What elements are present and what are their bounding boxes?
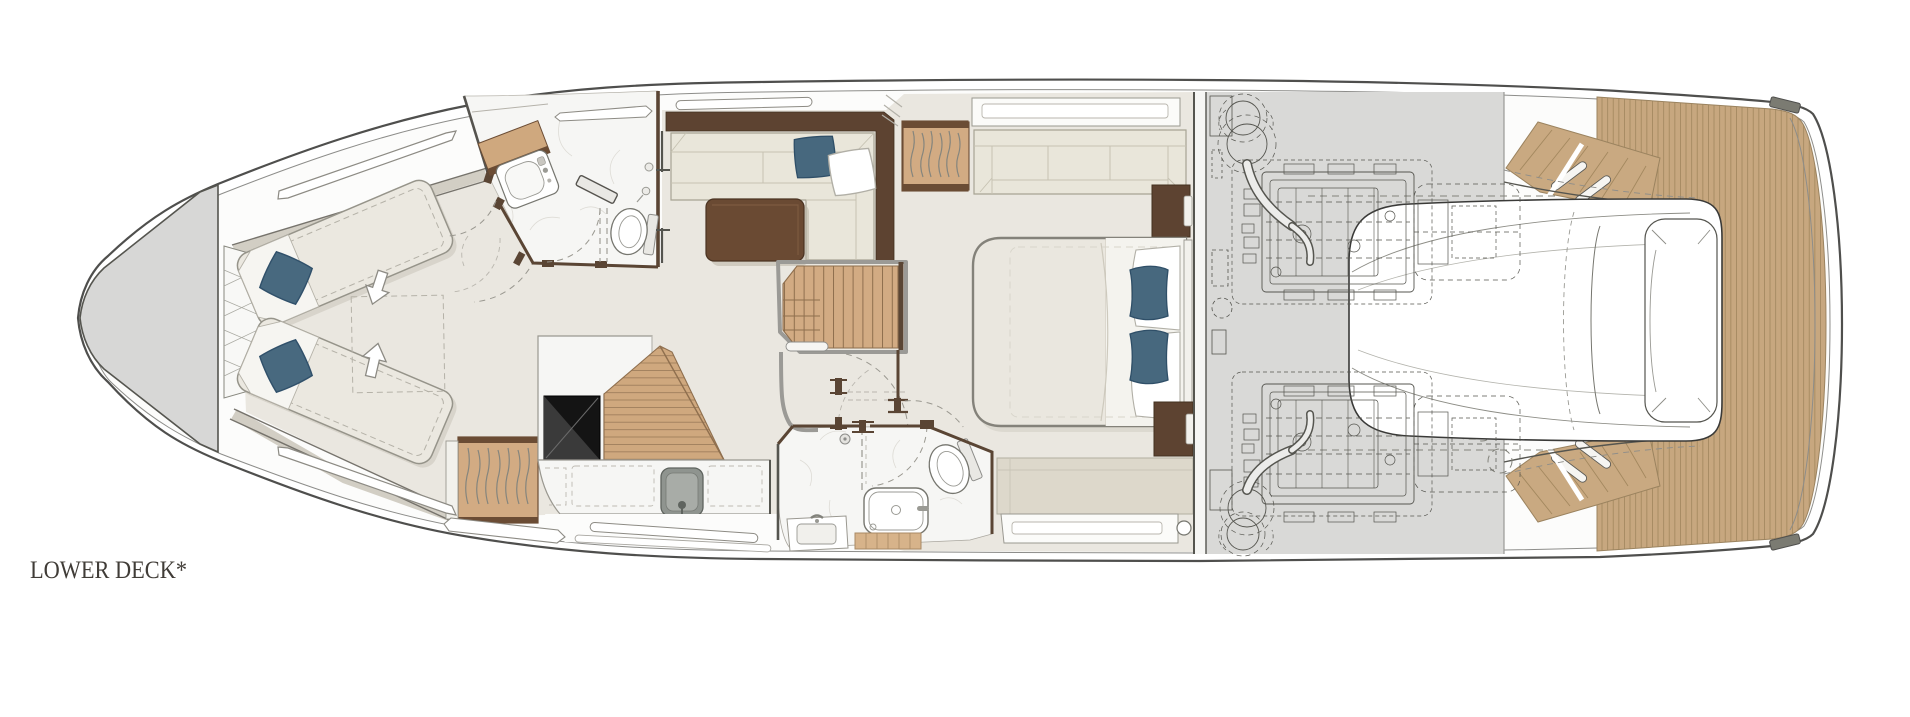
svg-text:LOWER DECK*: LOWER DECK*	[30, 557, 187, 584]
